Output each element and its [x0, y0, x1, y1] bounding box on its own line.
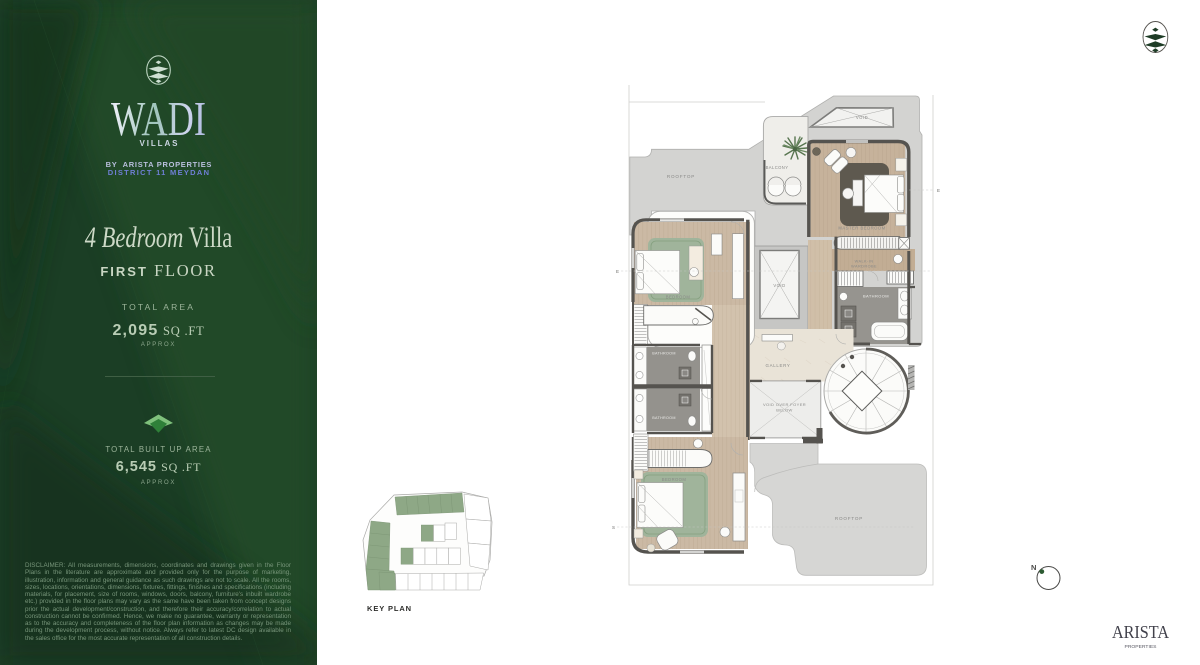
svg-text:VOID: VOID [773, 283, 785, 288]
svg-text:VOID OVER FOYER: VOID OVER FOYER [763, 402, 806, 407]
svg-text:KEY PLAN: KEY PLAN [367, 604, 412, 613]
svg-text:ROOFTOP: ROOFTOP [835, 516, 863, 521]
svg-text:MASTER BEDROOM: MASTER BEDROOM [838, 226, 885, 231]
svg-text:BATHROOM: BATHROOM [863, 294, 889, 299]
svg-text:BALCONY: BALCONY [766, 165, 789, 170]
svg-text:BEDROOM: BEDROOM [666, 295, 691, 300]
svg-text:WARDROBE: WARDROBE [851, 264, 877, 269]
svg-text:E: E [937, 188, 940, 193]
svg-text:ROOFTOP: ROOFTOP [667, 174, 695, 179]
svg-text:N: N [1031, 563, 1036, 572]
svg-text:BELOW: BELOW [776, 408, 792, 413]
svg-text:BATHROOM: BATHROOM [652, 352, 675, 356]
svg-text:E: E [616, 269, 619, 274]
svg-text:S: S [612, 525, 615, 530]
svg-text:GALLERY: GALLERY [765, 363, 790, 368]
svg-text:BEDROOM: BEDROOM [662, 477, 687, 482]
svg-text:BATHROOM: BATHROOM [652, 416, 675, 420]
svg-text:ARISTA: ARISTA [1112, 622, 1169, 642]
svg-text:VOID: VOID [856, 115, 868, 120]
svg-text:PROPERTIES: PROPERTIES [1125, 644, 1157, 649]
